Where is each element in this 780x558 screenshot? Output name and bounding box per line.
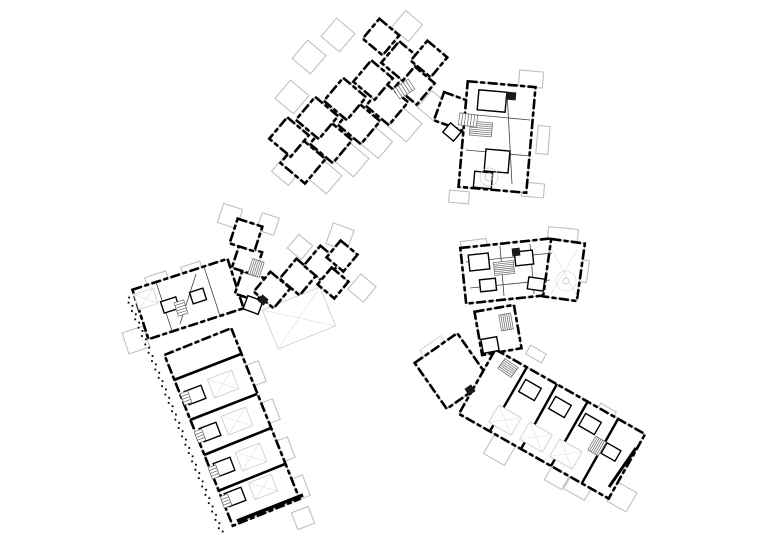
balcony [291,506,314,529]
service-room [477,90,507,112]
service-room [484,149,510,173]
balcony [526,345,547,363]
architectural-site-plan [0,0,780,558]
balcony [348,274,376,302]
stair-icon [458,113,477,127]
service-room [468,253,490,271]
service-room [481,337,499,354]
balcony [449,190,470,204]
balcony [292,40,326,74]
service-room [527,277,545,291]
north-building-plan [269,11,550,204]
service-room [479,278,496,292]
stair-icon [499,313,514,331]
stair-icon [493,260,514,275]
balcony [536,126,550,155]
balcony [287,234,312,259]
core [512,248,521,257]
balcony [321,18,355,52]
core [506,92,517,101]
west-building-plan [122,203,376,532]
room [543,239,585,301]
east-building-plan [415,227,645,512]
floor-plan-page [0,0,780,558]
